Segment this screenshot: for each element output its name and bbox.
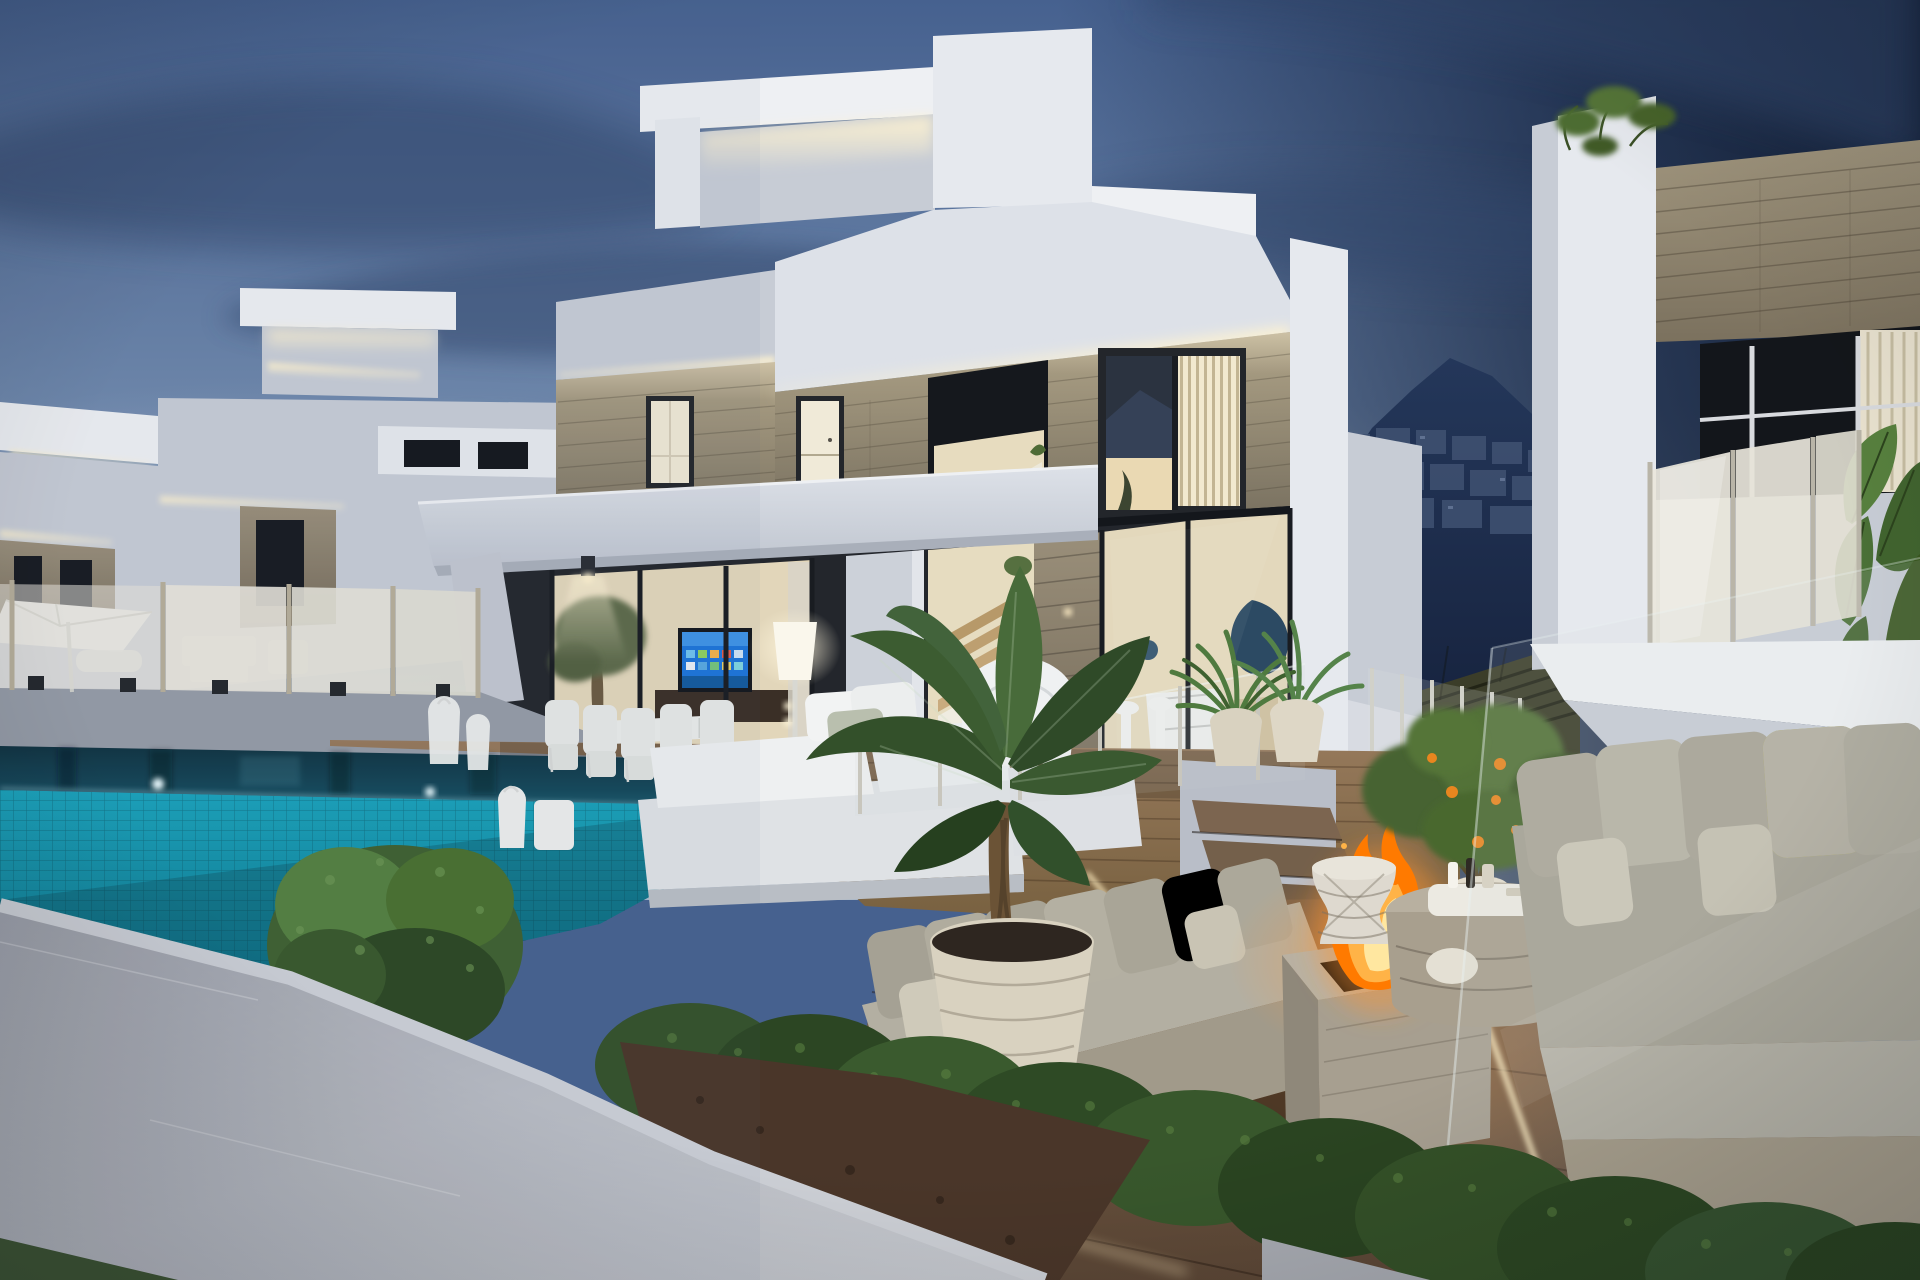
architectural-render bbox=[0, 0, 1920, 1280]
dusk-cast bbox=[0, 0, 760, 1280]
atmosphere bbox=[0, 0, 1920, 1280]
